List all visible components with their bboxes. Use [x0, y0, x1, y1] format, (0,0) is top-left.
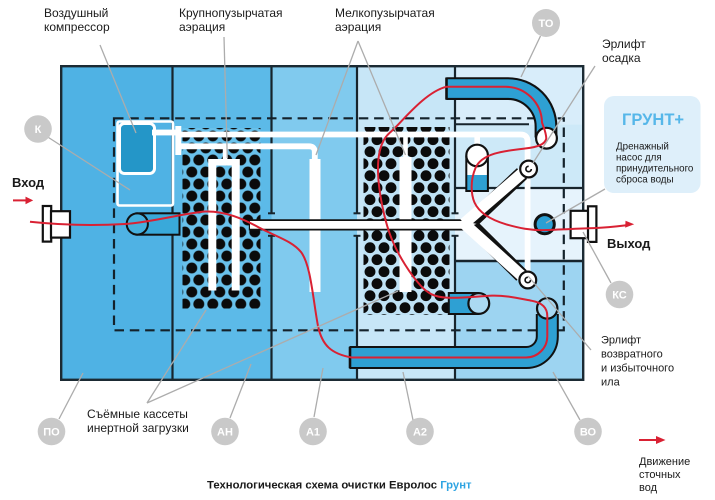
svg-text:К: К	[35, 124, 42, 136]
svg-text:Эрлифт: Эрлифт	[601, 335, 641, 347]
svg-text:Эрлифт: Эрлифт	[602, 37, 646, 51]
svg-text:Съёмные кассеты: Съёмные кассеты	[87, 407, 188, 421]
svg-text:А1: А1	[306, 427, 320, 439]
svg-text:Крупнопузырчатая: Крупнопузырчатая	[179, 6, 283, 20]
svg-text:Технологическая схема очистки: Технологическая схема очистки Евролос Гр…	[207, 480, 472, 492]
svg-text:инертной загрузки: инертной загрузки	[87, 421, 189, 435]
svg-text:Вход: Вход	[12, 175, 45, 190]
svg-text:аэрация: аэрация	[179, 20, 225, 34]
svg-text:ПО: ПО	[43, 427, 60, 439]
svg-text:и избыточного: и избыточного	[601, 363, 674, 375]
svg-text:принудительного: принудительного	[616, 164, 694, 175]
svg-text:осадка: осадка	[602, 51, 641, 65]
svg-text:А2: А2	[413, 427, 427, 439]
svg-text:Воздушный: Воздушный	[44, 6, 108, 20]
svg-text:КС: КС	[612, 290, 627, 302]
svg-text:сточных: сточных	[639, 469, 681, 481]
svg-text:возвратного: возвратного	[601, 349, 663, 361]
svg-text:ТО: ТО	[538, 18, 553, 30]
svg-text:Дренажный: Дренажный	[616, 142, 669, 153]
svg-text:ГРУНТ+: ГРУНТ+	[622, 111, 684, 129]
svg-text:компрессор: компрессор	[44, 20, 110, 34]
svg-text:АН: АН	[217, 427, 233, 439]
svg-text:аэрация: аэрация	[335, 20, 381, 34]
svg-text:сброса воды: сброса воды	[616, 175, 674, 186]
svg-text:Движение: Движение	[639, 456, 690, 468]
svg-text:Выход: Выход	[607, 236, 651, 251]
svg-text:ВО: ВО	[580, 427, 597, 439]
svg-text:Мелкопузырчатая: Мелкопузырчатая	[335, 6, 435, 20]
svg-text:вод: вод	[639, 482, 658, 494]
svg-text:насос для: насос для	[616, 153, 662, 164]
svg-text:ила: ила	[601, 377, 621, 389]
